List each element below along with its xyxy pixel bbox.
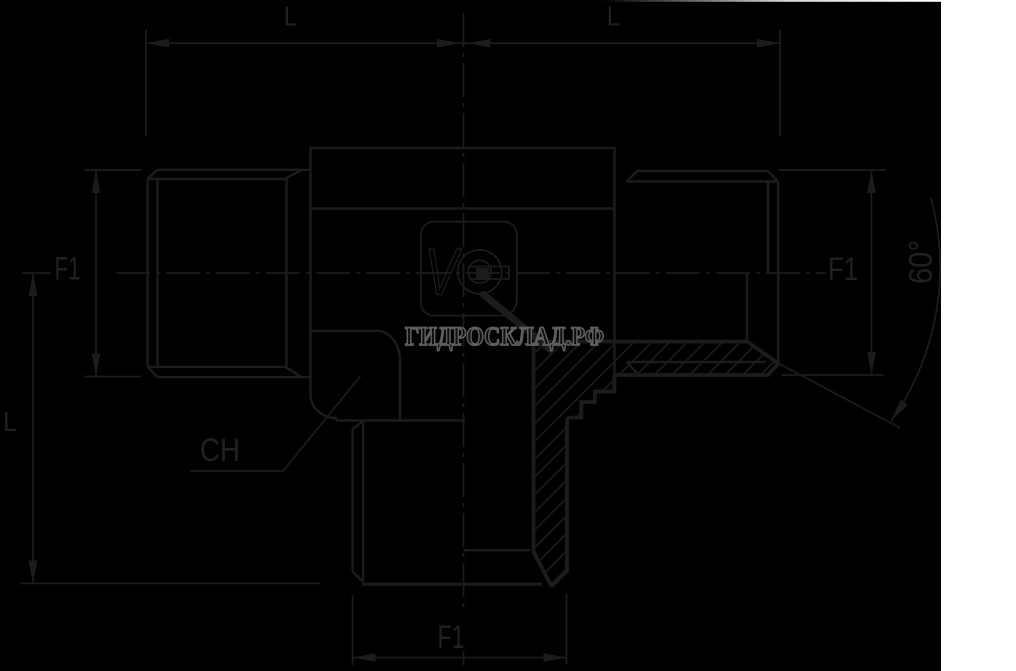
svg-text:L: L (284, 1, 298, 32)
svg-text:L: L (607, 1, 621, 32)
svg-text:60°: 60° (902, 240, 939, 284)
svg-text:ГИДРОСКЛАД.РФ: ГИДРОСКЛАД.РФ (405, 322, 604, 351)
svg-text:F1: F1 (828, 251, 858, 287)
svg-text:V: V (425, 236, 462, 310)
svg-text:F1: F1 (438, 619, 465, 655)
svg-text:F1: F1 (55, 250, 81, 286)
svg-text:CH: CH (200, 432, 240, 468)
svg-text:L: L (3, 406, 17, 437)
